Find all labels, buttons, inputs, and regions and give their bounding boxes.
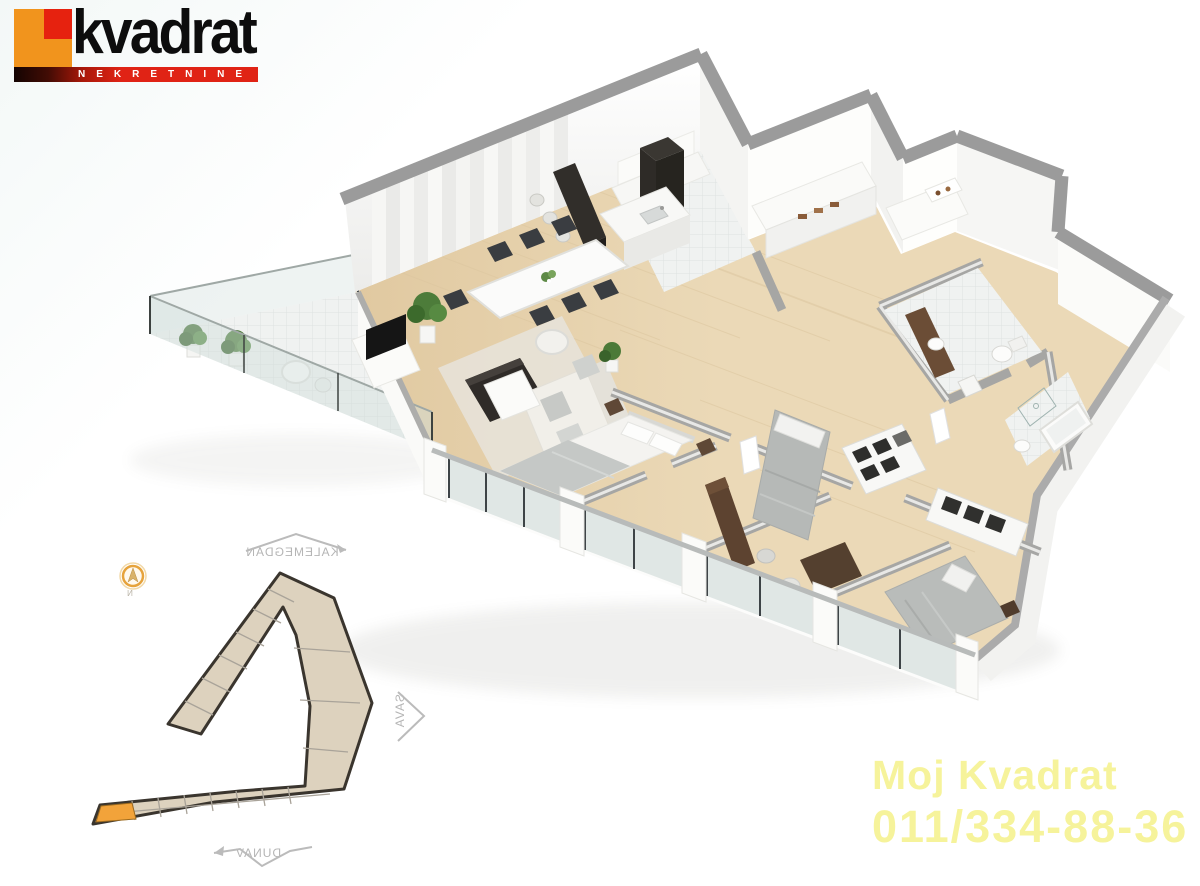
north-compass-icon: N [120,563,146,598]
building-footprint [93,573,372,824]
contact-phone: 011/334-88-36 [872,800,1188,854]
logo-tagline-bar: NEKRETNINE [14,67,258,82]
sink [928,338,944,350]
armchair [536,330,568,354]
logo-square-icon [14,9,72,67]
logo-red-square [44,9,72,39]
highlighted-unit [96,803,136,822]
desk-chair [757,549,775,563]
toilet [1014,440,1030,452]
compass-letter: N [127,589,133,598]
brand-tagline: NEKRETNINE [78,69,253,80]
door [740,436,760,474]
label-dunav: DUNAV [235,846,281,860]
brand-name: kvadrat [72,0,255,67]
contact-info: Moj Kvadrat 011/334-88-36 [872,750,1188,854]
real-estate-listing-image: N KALEMEGDAN SAVA DUNAV kvadrat NEKRETNI… [0,0,1200,886]
site-plan: N KALEMEGDAN SAVA DUNAV [93,534,424,866]
contact-name: Moj Kvadrat [872,750,1188,800]
brand-logo: kvadrat NEKRETNINE [10,4,266,92]
